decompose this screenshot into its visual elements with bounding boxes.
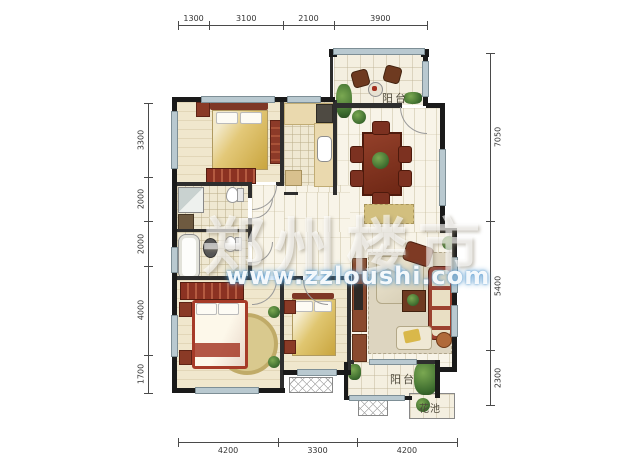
wall-balcony-bottom-right <box>435 360 440 398</box>
label-flower-bed: 花池 <box>419 400 441 415</box>
label-balcony-top: 阳台 <box>382 90 408 106</box>
wall-balcony-left <box>330 54 333 97</box>
wall-balcony-bottom-left <box>344 362 348 398</box>
kitchen-cart <box>285 170 302 186</box>
wall-master-right <box>280 280 284 392</box>
watermark-url: www.zzloushi.com <box>226 262 490 290</box>
wall-living-balcony <box>416 360 437 364</box>
window <box>440 150 445 205</box>
pillow <box>218 303 239 315</box>
dimension-line-left: 33002000200040001700 <box>148 103 149 393</box>
pillow <box>216 112 238 124</box>
nightstand <box>196 102 210 117</box>
side-table <box>436 332 452 348</box>
window <box>172 316 177 356</box>
wall-bedroom-bottom <box>172 182 252 186</box>
dimension-label: 7050 <box>494 127 503 147</box>
dimension-tick <box>486 53 495 54</box>
wall-living-bottom <box>437 367 457 372</box>
dimension-tick <box>486 405 495 406</box>
dimension-tick <box>457 438 458 447</box>
window <box>172 248 177 272</box>
balcony-rail-cap <box>404 396 412 400</box>
bed-headboard <box>210 102 268 110</box>
dimension-tick <box>144 355 153 356</box>
dimension-tick <box>144 266 153 267</box>
window <box>452 306 457 336</box>
dining-chair <box>350 170 364 187</box>
dimension-label: 3300 <box>137 130 146 150</box>
label-balcony-bottom: 阳台 <box>390 371 416 387</box>
wall-bedroom2-right <box>347 276 351 374</box>
dining-chair <box>398 146 412 163</box>
dimension-label: 2000 <box>137 189 146 209</box>
bathtub <box>178 234 200 280</box>
dimension-label: 2000 <box>137 233 146 253</box>
balcony-table-item <box>372 86 377 91</box>
dining-chair <box>398 170 412 187</box>
plant <box>336 84 352 118</box>
dimension-tick <box>178 21 179 30</box>
dimension-tick <box>278 438 279 447</box>
plant <box>268 306 280 318</box>
dimension-tick <box>144 393 153 394</box>
nightstand <box>179 302 192 317</box>
dimension-tick <box>334 21 335 30</box>
wall-kitchen-right <box>333 100 337 195</box>
dimension-label: 4200 <box>397 446 417 455</box>
dimension-tick <box>144 221 153 222</box>
plant <box>407 294 419 306</box>
plant <box>268 356 280 368</box>
dimension-tick <box>209 21 210 30</box>
bed-throw <box>194 343 240 357</box>
dimension-label: 1700 <box>137 364 146 384</box>
balcony-railing <box>334 49 424 54</box>
floorplan-canvas: 1300310021003900 420033004200 3300200020… <box>0 0 620 470</box>
dimension-label: 3100 <box>236 14 256 23</box>
nightstand <box>284 300 296 314</box>
window <box>172 112 177 168</box>
window <box>288 97 320 102</box>
pillow <box>240 112 262 124</box>
shower <box>178 187 204 213</box>
kitchen-sink <box>317 136 332 162</box>
dimension-label: 2300 <box>494 367 503 387</box>
plant <box>352 110 366 124</box>
nightstand <box>179 350 192 365</box>
dimension-line-top: 1300310021003900 <box>178 25 427 26</box>
wall-bedroom-bottom <box>276 182 284 186</box>
stove <box>316 104 333 123</box>
dimension-tick <box>144 103 153 104</box>
dining-chair <box>350 146 364 163</box>
window <box>423 62 428 96</box>
dimension-tick <box>144 177 153 178</box>
dimension-tick <box>357 438 358 447</box>
window <box>202 97 274 102</box>
ac-platform <box>358 400 388 416</box>
dimension-tick <box>486 350 495 351</box>
dimension-label: 4200 <box>218 446 238 455</box>
wall-kitchen-stub <box>284 192 298 195</box>
plant <box>372 152 389 169</box>
dimension-tick <box>178 438 179 447</box>
dimension-label: 4000 <box>137 300 146 320</box>
window <box>298 370 336 375</box>
dimension-label: 1300 <box>183 14 203 23</box>
pillow <box>295 301 313 312</box>
pillow <box>196 303 217 315</box>
dining-chair <box>372 121 390 135</box>
dimension-label: 3300 <box>307 446 327 455</box>
dimension-label: 3900 <box>370 14 390 23</box>
cabinet <box>352 334 367 362</box>
dimension-label: 2100 <box>298 14 318 23</box>
ac-platform <box>289 377 333 393</box>
toilet-tank <box>237 188 244 202</box>
nightstand <box>284 340 296 354</box>
window <box>370 360 416 364</box>
dimension-line-bottom: 420033004200 <box>178 442 457 443</box>
dimension-tick <box>427 21 428 30</box>
dimension-tick <box>283 21 284 30</box>
window <box>196 388 258 393</box>
wall-bedroom-kitchen <box>280 100 284 184</box>
balcony-railing <box>350 396 404 400</box>
